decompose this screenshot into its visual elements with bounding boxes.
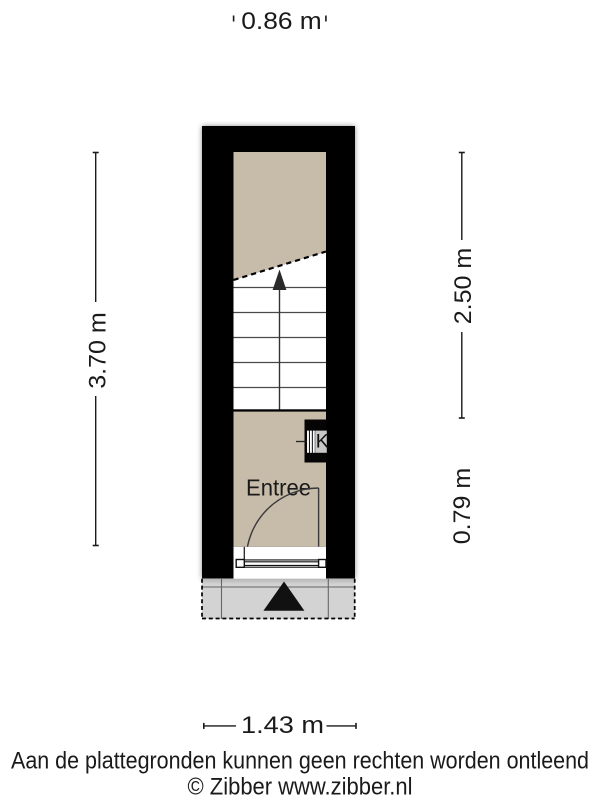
svg-text:1.43 m: 1.43 m — [241, 712, 324, 739]
svg-text:Entree: Entree — [246, 475, 311, 501]
svg-text:3.70 m: 3.70 m — [84, 312, 111, 389]
svg-text:© Zibber www.zibber.nl: © Zibber www.zibber.nl — [188, 774, 413, 800]
svg-text:Aan de plattegronden kunnen ge: Aan de plattegronden kunnen geen rechten… — [11, 748, 589, 775]
svg-text:0.86 m: 0.86 m — [241, 8, 322, 35]
svg-text:K: K — [316, 431, 329, 453]
svg-text:2.50 m: 2.50 m — [450, 248, 477, 325]
svg-text:0.79 m: 0.79 m — [449, 468, 476, 545]
